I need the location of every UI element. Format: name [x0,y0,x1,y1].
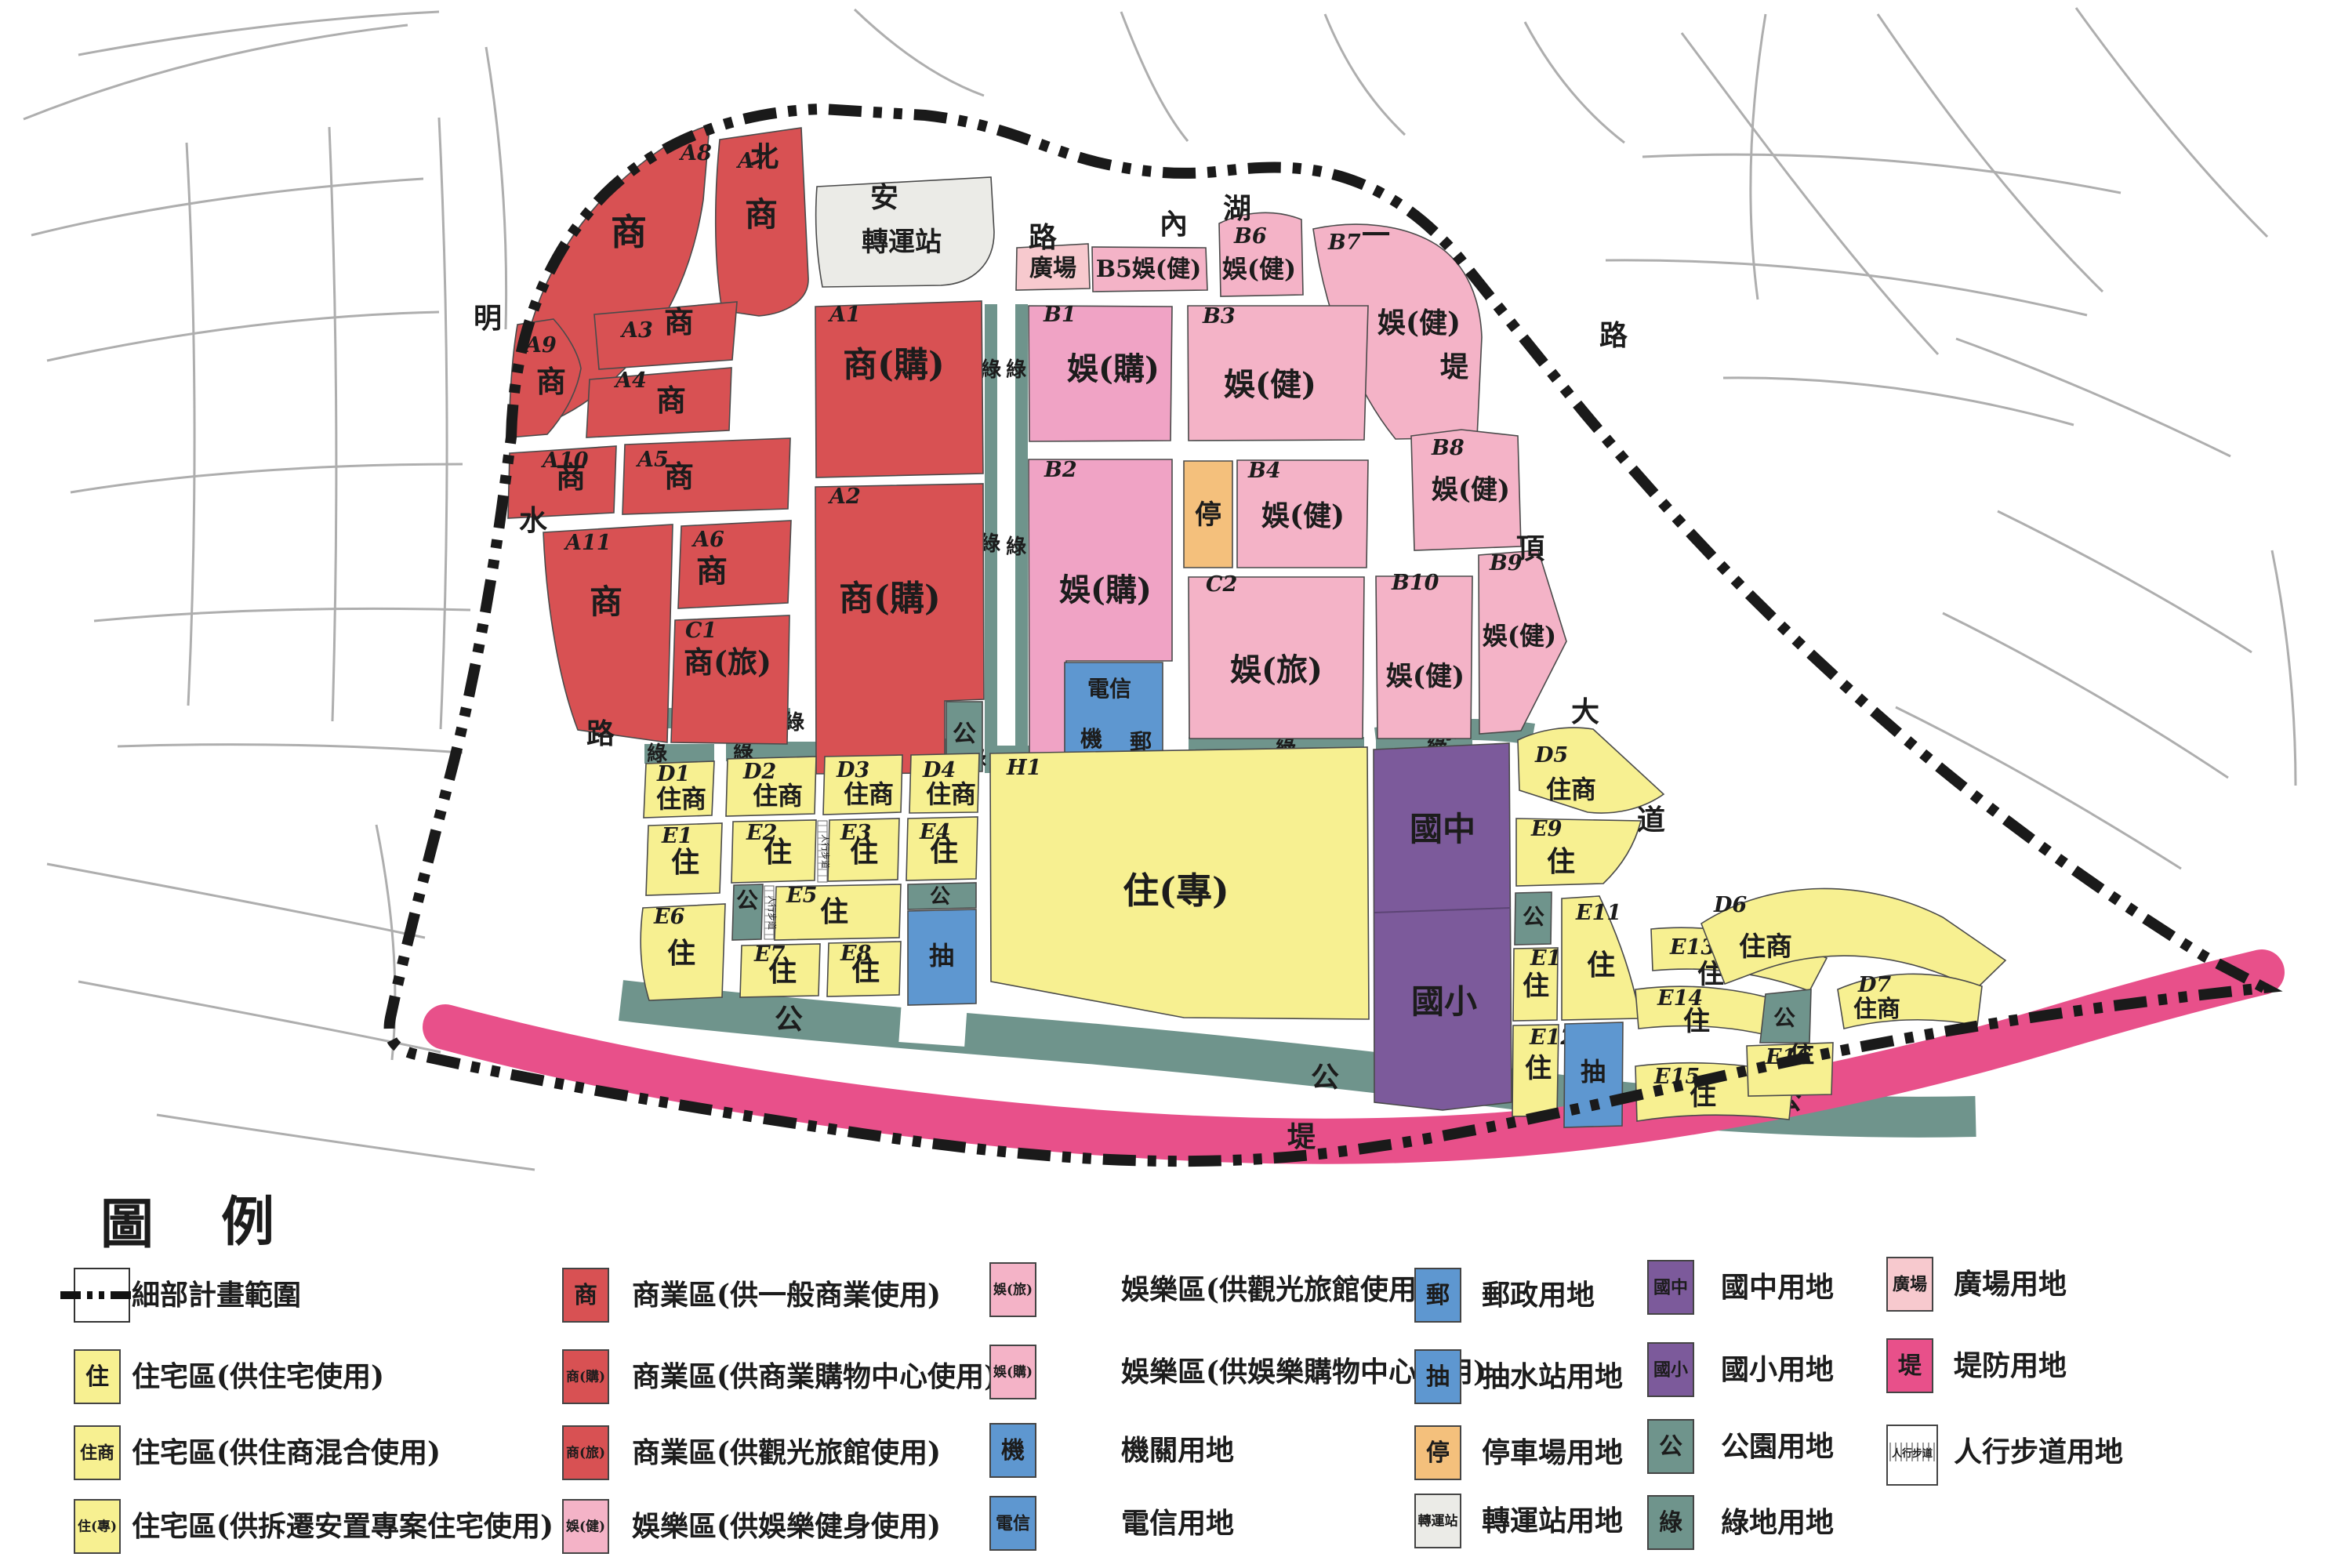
legend-item: 人行步道人行步道用地 [1887,1425,2123,1485]
legend-panel: 圖 例 細部計畫範圍住住宅區(供住宅使用)住商住宅區(供住商混合使用)住(專)住… [60,1191,2123,1553]
background-street [1682,33,1938,354]
background-street [157,1115,535,1170]
zone-H1: H1住(專) [990,747,1369,1019]
legend-item: 娛(旅)娛樂區(供觀光旅館使用) [990,1263,1430,1316]
legend-swatch-label: 公 [1659,1433,1682,1461]
legend-item: 公公園用地 [1648,1420,1834,1473]
zone-D5: D5住商 [1518,728,1664,813]
zone-id-label: E6 [653,905,685,929]
legend-item-desc: 綠地用地 [1721,1506,1834,1539]
zone-PK5: 公 [1760,989,1811,1043]
legend-item: 娛(健)娛樂區(供娛樂健身使用) [563,1500,941,1553]
legend-title-li: 例 [221,1191,274,1254]
zone-id-label: B1 [1043,303,1076,327]
background-street [486,47,506,329]
zone-use-label: 娛(購) [1059,572,1152,608]
zone-use-label: 停 [1195,499,1221,531]
zone-C2: C2娛(旅) [1189,572,1364,739]
zone-use-label: 商 [590,583,622,621]
zone-use-label: 商(購) [839,579,941,619]
background-street [1606,260,2087,315]
legend-swatch-label: 停 [1426,1439,1450,1467]
zone-E1: E1住 [646,823,722,895]
background-street [329,127,336,721]
zone-A1: A1商(購) [815,301,983,477]
sidewalk-label: 人行步道 [820,834,831,869]
legend-swatch-label: 郵 [1426,1282,1450,1309]
road-name-char: 水 [519,504,548,537]
zone-use-label: 住 [1547,845,1575,878]
zone-id-label: C1 [685,619,717,643]
zone-id-label: B8 [1431,436,1465,460]
road-name-char: 內 [1160,208,1188,241]
legend-swatch-label: 商(旅) [566,1445,605,1461]
legend-item-desc: 郵政用地 [1482,1279,1595,1312]
legend-item: 停停車場用地 [1415,1426,1623,1479]
legend-title-tu: 圖 [100,1193,154,1256]
zone-B5: B5娛(健) [1092,247,1207,292]
legend-swatch-label: 廣場 [1893,1274,1927,1294]
zone-PK3: 公 [908,883,976,909]
zone-D3: D3住商 [823,755,902,815]
zone-SCH: 國中國小 [1374,743,1512,1110]
zone-use-label: 住 [820,895,848,928]
background-street [2272,550,2296,786]
zone-B6: B6娛(健) [1219,212,1303,296]
zone-use-label: 公 [930,885,950,909]
background-street [71,464,463,492]
zone-use-label: 廣場 [1029,255,1076,282]
zone-E6: E6住 [641,904,725,1000]
legend-item-desc: 機關用地 [1121,1434,1234,1467]
legend-swatch-label: 住 [85,1363,109,1391]
zone-A5: A5商 [622,438,790,514]
road-name-char: 一 [1362,219,1390,252]
zone-P1: 停 [1184,461,1232,568]
zone-id-label: E9 [1530,817,1563,841]
zone-E3: E3住 [828,818,899,881]
zone-use-label: 商 [664,304,694,339]
zone-id-label: A3 [619,318,653,343]
legend-item-desc: 停車場用地 [1482,1436,1623,1469]
zone-use-label: 住商 [1853,996,1900,1023]
legend-item-desc: 電信用地 [1121,1507,1234,1540]
legend-item-desc: 娛樂區(供觀光旅館使用) [1121,1273,1430,1306]
zone-id-label: D7 [1857,973,1891,997]
background-street [1998,511,2252,652]
legend-item: 廣場廣場用地 [1887,1258,2067,1311]
legend-item-desc: 堤防用地 [1954,1349,2067,1382]
legend-swatch-label: 商 [574,1282,597,1309]
legend-swatch-label: 轉運站 [1418,1513,1458,1530]
zone-use-label: 商(購) [843,345,945,385]
zone-use-label: 住 [764,836,792,869]
zone-use-label: 機 [1080,726,1102,752]
background-street [1751,14,1766,299]
legend-item-desc: 轉運站用地 [1482,1504,1623,1537]
legend-swatch-label: 國中 [1653,1277,1688,1298]
zone-id-label: B6 [1233,224,1267,249]
zone-use-label: 住 [850,836,878,869]
background-street [1956,339,2230,456]
zone-D6: D6住商 [1701,888,2005,989]
legend-item-desc: 公園用地 [1721,1430,1834,1463]
legend-swatch-label: 堤 [1898,1352,1922,1380]
legend-item: 電信電信用地 [990,1497,1234,1550]
zone-use-label: 商 [611,211,647,253]
road-name-char: 路 [1599,319,1628,352]
background-street [24,25,408,119]
legend-item-desc: 住宅區(供住宅使用) [132,1360,384,1393]
road-name-char: 堤 [1440,350,1469,383]
zone-use-label: B5娛(健) [1096,256,1202,283]
legend-item-desc: 廣場用地 [1954,1268,2067,1301]
legend-item-desc: 娛樂區(供娛樂健身使用) [632,1510,941,1543]
legend-item-desc: 國中用地 [1721,1271,1834,1304]
background-street [1878,14,2103,292]
legend-item: 國中國中用地 [1648,1261,1834,1314]
zone-B9: B9娛(健) [1479,550,1566,734]
zone-use-label: 轉運站 [862,227,942,258]
zone-use-label: 國小 [1411,982,1477,1021]
zone-id-label: A6 [691,528,724,552]
park-band-label: 公 [1311,1061,1339,1094]
background-street [1525,22,1624,143]
zone-use-label: 住 [1523,971,1549,1002]
legend-item: 住住宅區(供住宅使用) [74,1350,384,1403]
legend-item-desc: 國小用地 [1721,1353,1834,1386]
road-name-char: 頂 [1516,532,1545,565]
zone-id-label: A1 [827,303,861,327]
zone-use-label: 住商 [1546,775,1596,804]
zone-CH1: 抽 [908,909,976,1005]
legend-item: 綠綠地用地 [1648,1496,1834,1549]
road-name-char: 明 [474,302,502,335]
legend-item: 商(購)商業區(供商業購物中心使用) [563,1350,997,1403]
zone-use-label: 住商 [844,779,894,809]
zone-PK4: 公 [1515,892,1552,945]
legend-swatch-label: 人行步道 [1892,1447,1933,1460]
legend-item-desc: 商業區(供觀光旅館使用) [632,1436,941,1469]
zone-use-label: 商 [556,459,586,495]
zone-use-label: 娛(健) [1261,499,1345,532]
zone-A11: A11商 [543,524,673,742]
background-street [1642,154,2121,193]
zone-id-label: B4 [1247,459,1281,483]
legend-item: 國小國小用地 [1648,1343,1834,1396]
zone-id-label: B2 [1044,458,1077,482]
green-strip-label: 綠 [1006,535,1026,559]
zone-id-label: E11 [1575,901,1621,925]
road-name-char: 道 [1637,804,1665,837]
zone-B10: B10娛(健) [1376,571,1472,739]
zone-use-label: 商(旅) [684,644,771,680]
background-street [855,9,984,96]
road-name-char: 路 [1029,221,1058,254]
background-street [47,312,439,361]
background-street [1723,378,2074,425]
zone-use-label: 娛(旅) [1230,652,1323,688]
zone-use-label: 住商 [1739,931,1792,963]
zone-use-label: 住 [851,954,880,987]
zone-B1: B1娛(購) [1029,303,1172,441]
zone-A4: A4商 [586,368,731,437]
zone-A6: A6商 [678,521,791,608]
legend-swatch-label: 綠 [1659,1509,1682,1537]
legend-swatch-label: 娛(健) [565,1519,605,1535]
zone-use-label: 國中 [1410,810,1475,848]
legend-swatch-label: 商(購) [566,1369,605,1385]
zone-E8: E8住 [827,942,901,996]
background-street [47,864,425,938]
zone-A3: A3商 [594,302,737,369]
legend-item: 轉運站轉運站用地 [1415,1494,1623,1548]
zone-id-label: B3 [1202,304,1236,328]
zone-ZS: 轉運站 [816,177,994,287]
zone-use-label: 娛(健) [1221,254,1296,284]
road-name-char: 路 [586,717,615,750]
zone-use-label: 抽 [929,941,954,971]
legend-swatch-label: 國小 [1653,1359,1688,1380]
zone-use-label: 娛(健) [1431,474,1510,506]
legend-item: 娛(購)娛樂區(供娛樂購物中心使用) [990,1345,1486,1399]
zone-use-label: 娛(健) [1377,307,1461,339]
zone-use-label: 電信 [1087,676,1131,702]
legend-item: 機機關用地 [990,1424,1234,1477]
zone-use-label: 商 [536,364,566,399]
zone-use-label: 商 [696,553,728,590]
zone-B8: B8娛(健) [1411,430,1521,550]
background-street [187,143,194,706]
zone-use-label: 娛(健) [1224,366,1316,403]
legend-item: 抽抽水站用地 [1415,1350,1623,1403]
zone-use-label: 住 [667,937,695,970]
zone-use-label: 住商 [753,781,803,811]
legend-swatch-label: 娛(購) [993,1364,1033,1381]
zone-id-label: B7 [1327,230,1361,255]
park-band-label: 公 [775,1003,803,1036]
zone-use-label: 住 [1587,949,1615,982]
legend-item-desc: 住宅區(供住商混合使用) [132,1436,441,1469]
zone-E4: E4住 [906,817,978,880]
plan-map-canvas: 綠綠綠綠綠綠綠綠綠綠綠綠綠綠綠綠綠綠 公公公堤 A8商A7商A3商A9商A4商A… [0,0,2352,1568]
sidewalk-label: 人行步道 [767,895,778,930]
legend-swatch-label: 娛(旅) [993,1282,1033,1298]
zone-use-label: 娛(健) [1385,661,1465,692]
road-name-char: 安 [870,181,898,214]
zone-id-label: D6 [1713,893,1747,917]
zone-B3: B3娛(健) [1188,304,1368,441]
levee-band-label: 堤 [1287,1120,1316,1153]
legend-swatch-label: 住商 [80,1443,114,1463]
legend-item-desc: 細部計畫範圍 [132,1279,301,1312]
zone-use-label: 商 [664,459,694,494]
zone-use-label: 住 [1683,1006,1710,1037]
road-name-char: 大 [1571,695,1599,728]
background-street [1325,14,1405,135]
zone-use-label: 住 [930,835,958,868]
zone-use-label: 公 [736,887,758,913]
zone-use-label: 公 [953,720,976,748]
zone-use-label: 商 [745,195,778,234]
zone-D1: D1住商 [644,761,714,818]
zone-use-label: 住 [768,955,797,988]
zone-use-label: 住(專) [1123,869,1229,912]
zone-use-label: 抽 [1581,1057,1606,1087]
background-street [118,745,463,753]
zone-D7: D7住商 [1838,973,1982,1029]
zone-E7: E7住 [740,942,820,997]
legend-item: 商商業區(供一般商業使用) [563,1269,941,1322]
background-street [31,179,423,235]
zone-use-label: 公 [1773,1005,1795,1031]
legend-item-desc: 商業區(供商業購物中心使用) [632,1360,997,1393]
zone-use-label: 住 [671,846,699,879]
zone-use-label: 住商 [926,779,976,809]
green-strip-label: 綠 [981,358,1001,382]
legend-swatch-label: 電信 [996,1513,1030,1534]
zone-id-label: C2 [1206,572,1237,597]
zone-id-label: D5 [1534,743,1568,768]
legend-item: 住(專)住宅區(供拆遷安置專案住宅使用) [74,1500,554,1553]
zone-id-label: D1 [656,762,690,786]
zone-B4: B4娛(健) [1237,459,1368,568]
urban-plan-map-page: { "colors": { "commercial": "#d85153", "… [0,0,2352,1568]
zone-C1: C1商(旅) [671,615,789,744]
zone-E9: E9住 [1516,817,1641,886]
band-road-gap [898,1003,967,1047]
zone-E11: E11住 [1562,896,1640,1020]
zone-use-label: 公 [1523,904,1544,930]
legend-item-desc: 人行步道用地 [1954,1436,2123,1468]
background-street [1121,12,1188,141]
zone-use-label: 住 [1525,1053,1552,1084]
zone-id-label: B10 [1391,571,1439,595]
zone-E2: E2住 [731,820,816,883]
zone-use-label: 商 [656,383,686,418]
legend-item-desc: 住宅區(供拆遷安置專案住宅使用) [132,1510,554,1543]
zone-id-label: H1 [1006,756,1041,780]
legend-item: 郵郵政用地 [1415,1269,1595,1322]
road-name-char: 湖 [1223,192,1251,225]
legend-item-desc: 商業區(供一般商業使用) [632,1279,941,1312]
legend-item-desc: 抽水站用地 [1482,1360,1623,1393]
road-name-char: 北 [750,140,779,173]
zone-D4: D4住商 [909,753,979,813]
background-street [439,118,447,729]
legend-item: 商(旅)商業區(供觀光旅館使用) [563,1426,941,1479]
zone-PK2: 公 [732,884,763,940]
zone-D2: D2住商 [726,757,816,816]
zone-E5: E5住 [775,884,901,940]
zone-id-label: A11 [563,531,612,555]
background-street [1896,707,2181,869]
background-street [94,608,470,621]
zone-id-label: E5 [786,884,817,908]
legend-item: 住商住宅區(供住商混合使用) [74,1426,441,1479]
legend-swatch-label: 住(專) [78,1519,117,1535]
zone-use-label: 住商 [656,784,706,814]
zone-id-label: A2 [827,485,861,509]
zone-use-label: 娛(購) [1067,350,1160,387]
legend-swatch-label: 抽 [1426,1363,1450,1391]
green-strip-label: 綠 [1006,358,1026,382]
zone-id-label: A4 [613,368,647,393]
legend-item: 堤堤防用地 [1887,1339,2067,1392]
background-street [2076,8,2267,237]
legend-swatch-label: 機 [1001,1437,1025,1465]
legend-item: 細部計畫範圍 [60,1269,301,1322]
zone-id-label: E1 [661,824,692,848]
zone-use-label: 娛(健) [1482,621,1556,651]
